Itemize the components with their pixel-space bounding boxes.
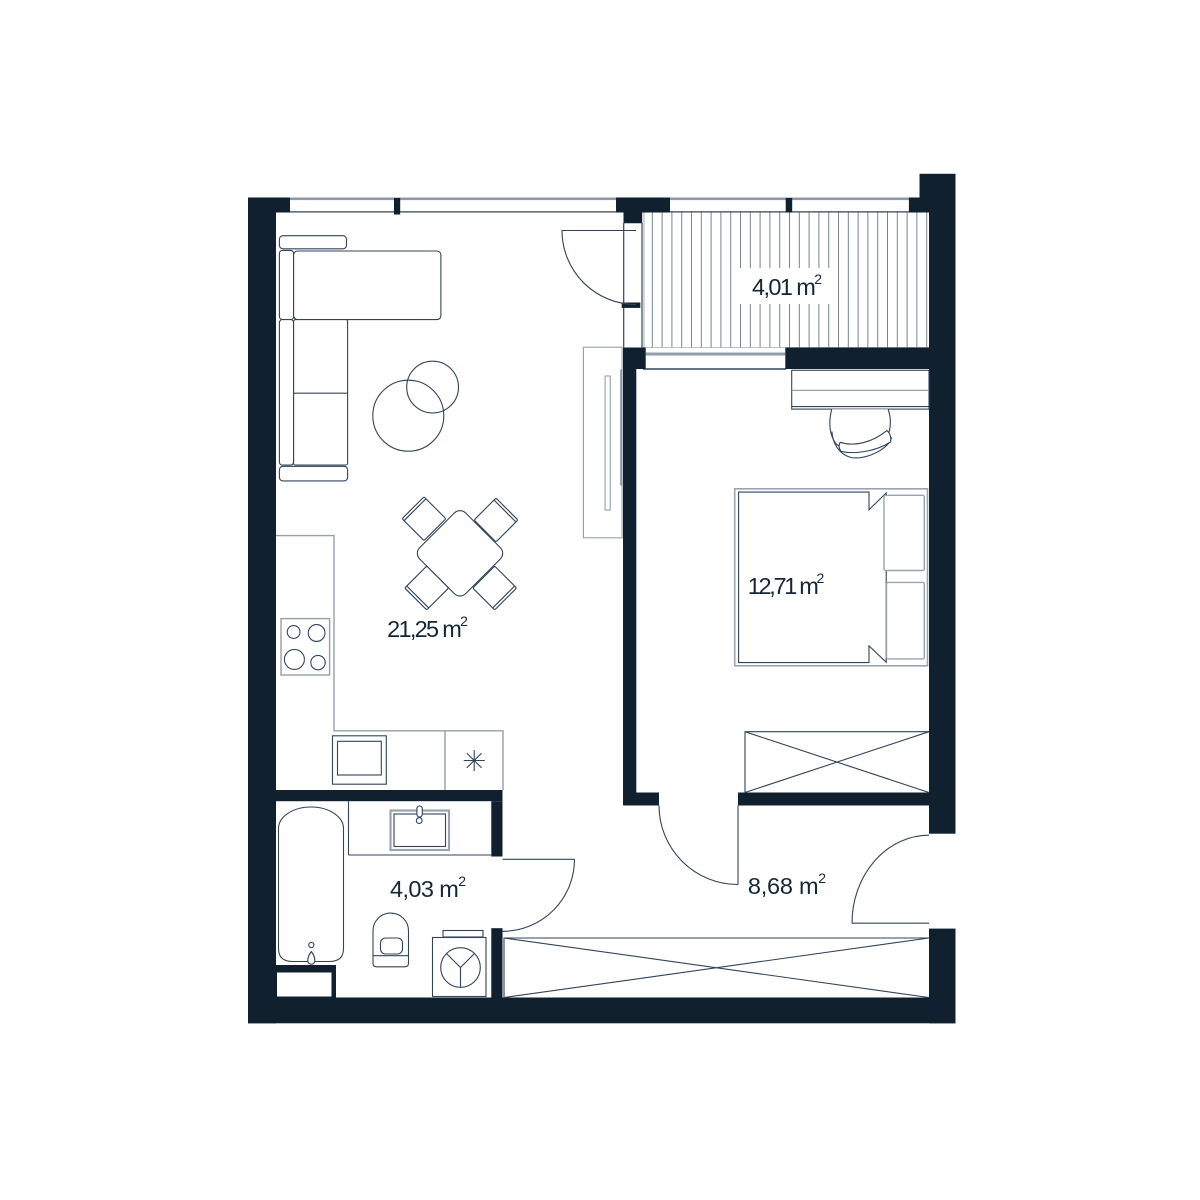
svg-text:4,03 m2: 4,03 m2 <box>390 873 466 902</box>
svg-text:4,01 m2: 4,01 m2 <box>752 271 822 300</box>
svg-text:8,68 m2: 8,68 m2 <box>748 870 826 899</box>
svg-text:12,71 m2: 12,71 m2 <box>748 570 825 599</box>
svg-text:21,25 m2: 21,25 m2 <box>387 613 468 642</box>
